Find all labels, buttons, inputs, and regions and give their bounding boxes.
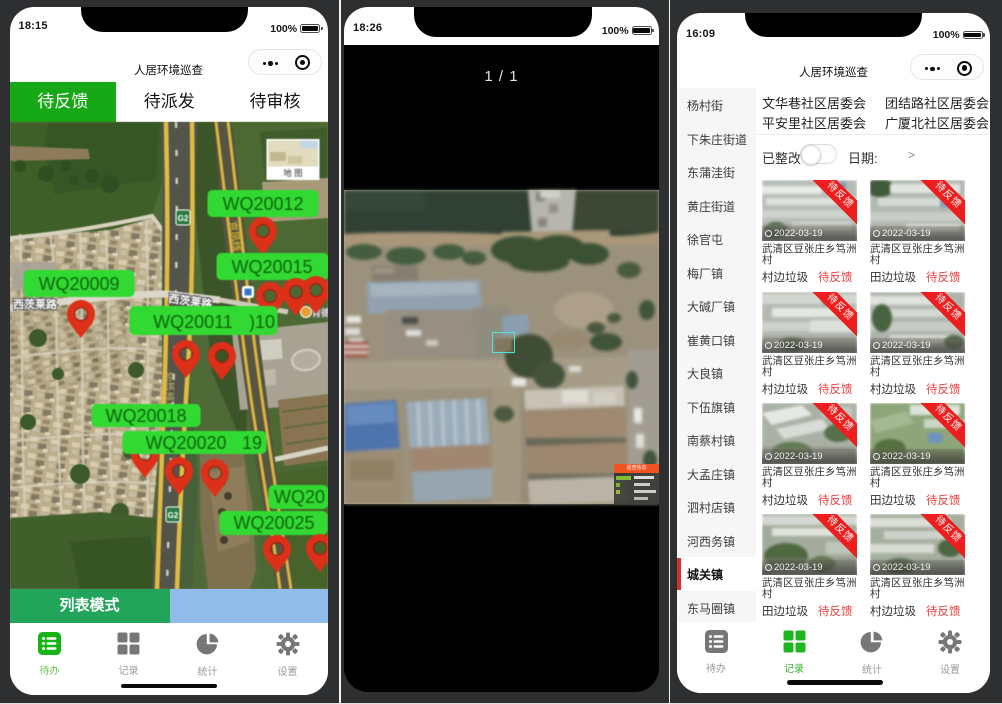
svg-text:WQ20011: WQ20011 bbox=[153, 312, 233, 332]
svg-text:WQ20018: WQ20018 bbox=[105, 406, 186, 426]
svg-text:WQ20025: WQ20025 bbox=[233, 513, 314, 533]
svg-text:WQ20015: WQ20015 bbox=[231, 257, 312, 277]
svg-text:西茨莱路: 西茨莱路 bbox=[13, 297, 58, 311]
svg-text:WQ20009: WQ20009 bbox=[38, 274, 119, 294]
svg-text:WQ20: WQ20 bbox=[274, 487, 325, 507]
svg-text:G2: G2 bbox=[167, 511, 178, 520]
svg-text:WQ20012: WQ20012 bbox=[222, 194, 303, 214]
svg-text:G2: G2 bbox=[177, 214, 188, 223]
svg-text:WQ20020: WQ20020 bbox=[145, 433, 226, 453]
svg-text:19: 19 bbox=[242, 433, 262, 453]
svg-text:地 图: 地 图 bbox=[283, 168, 302, 178]
svg-text:)10: )10 bbox=[249, 312, 275, 332]
